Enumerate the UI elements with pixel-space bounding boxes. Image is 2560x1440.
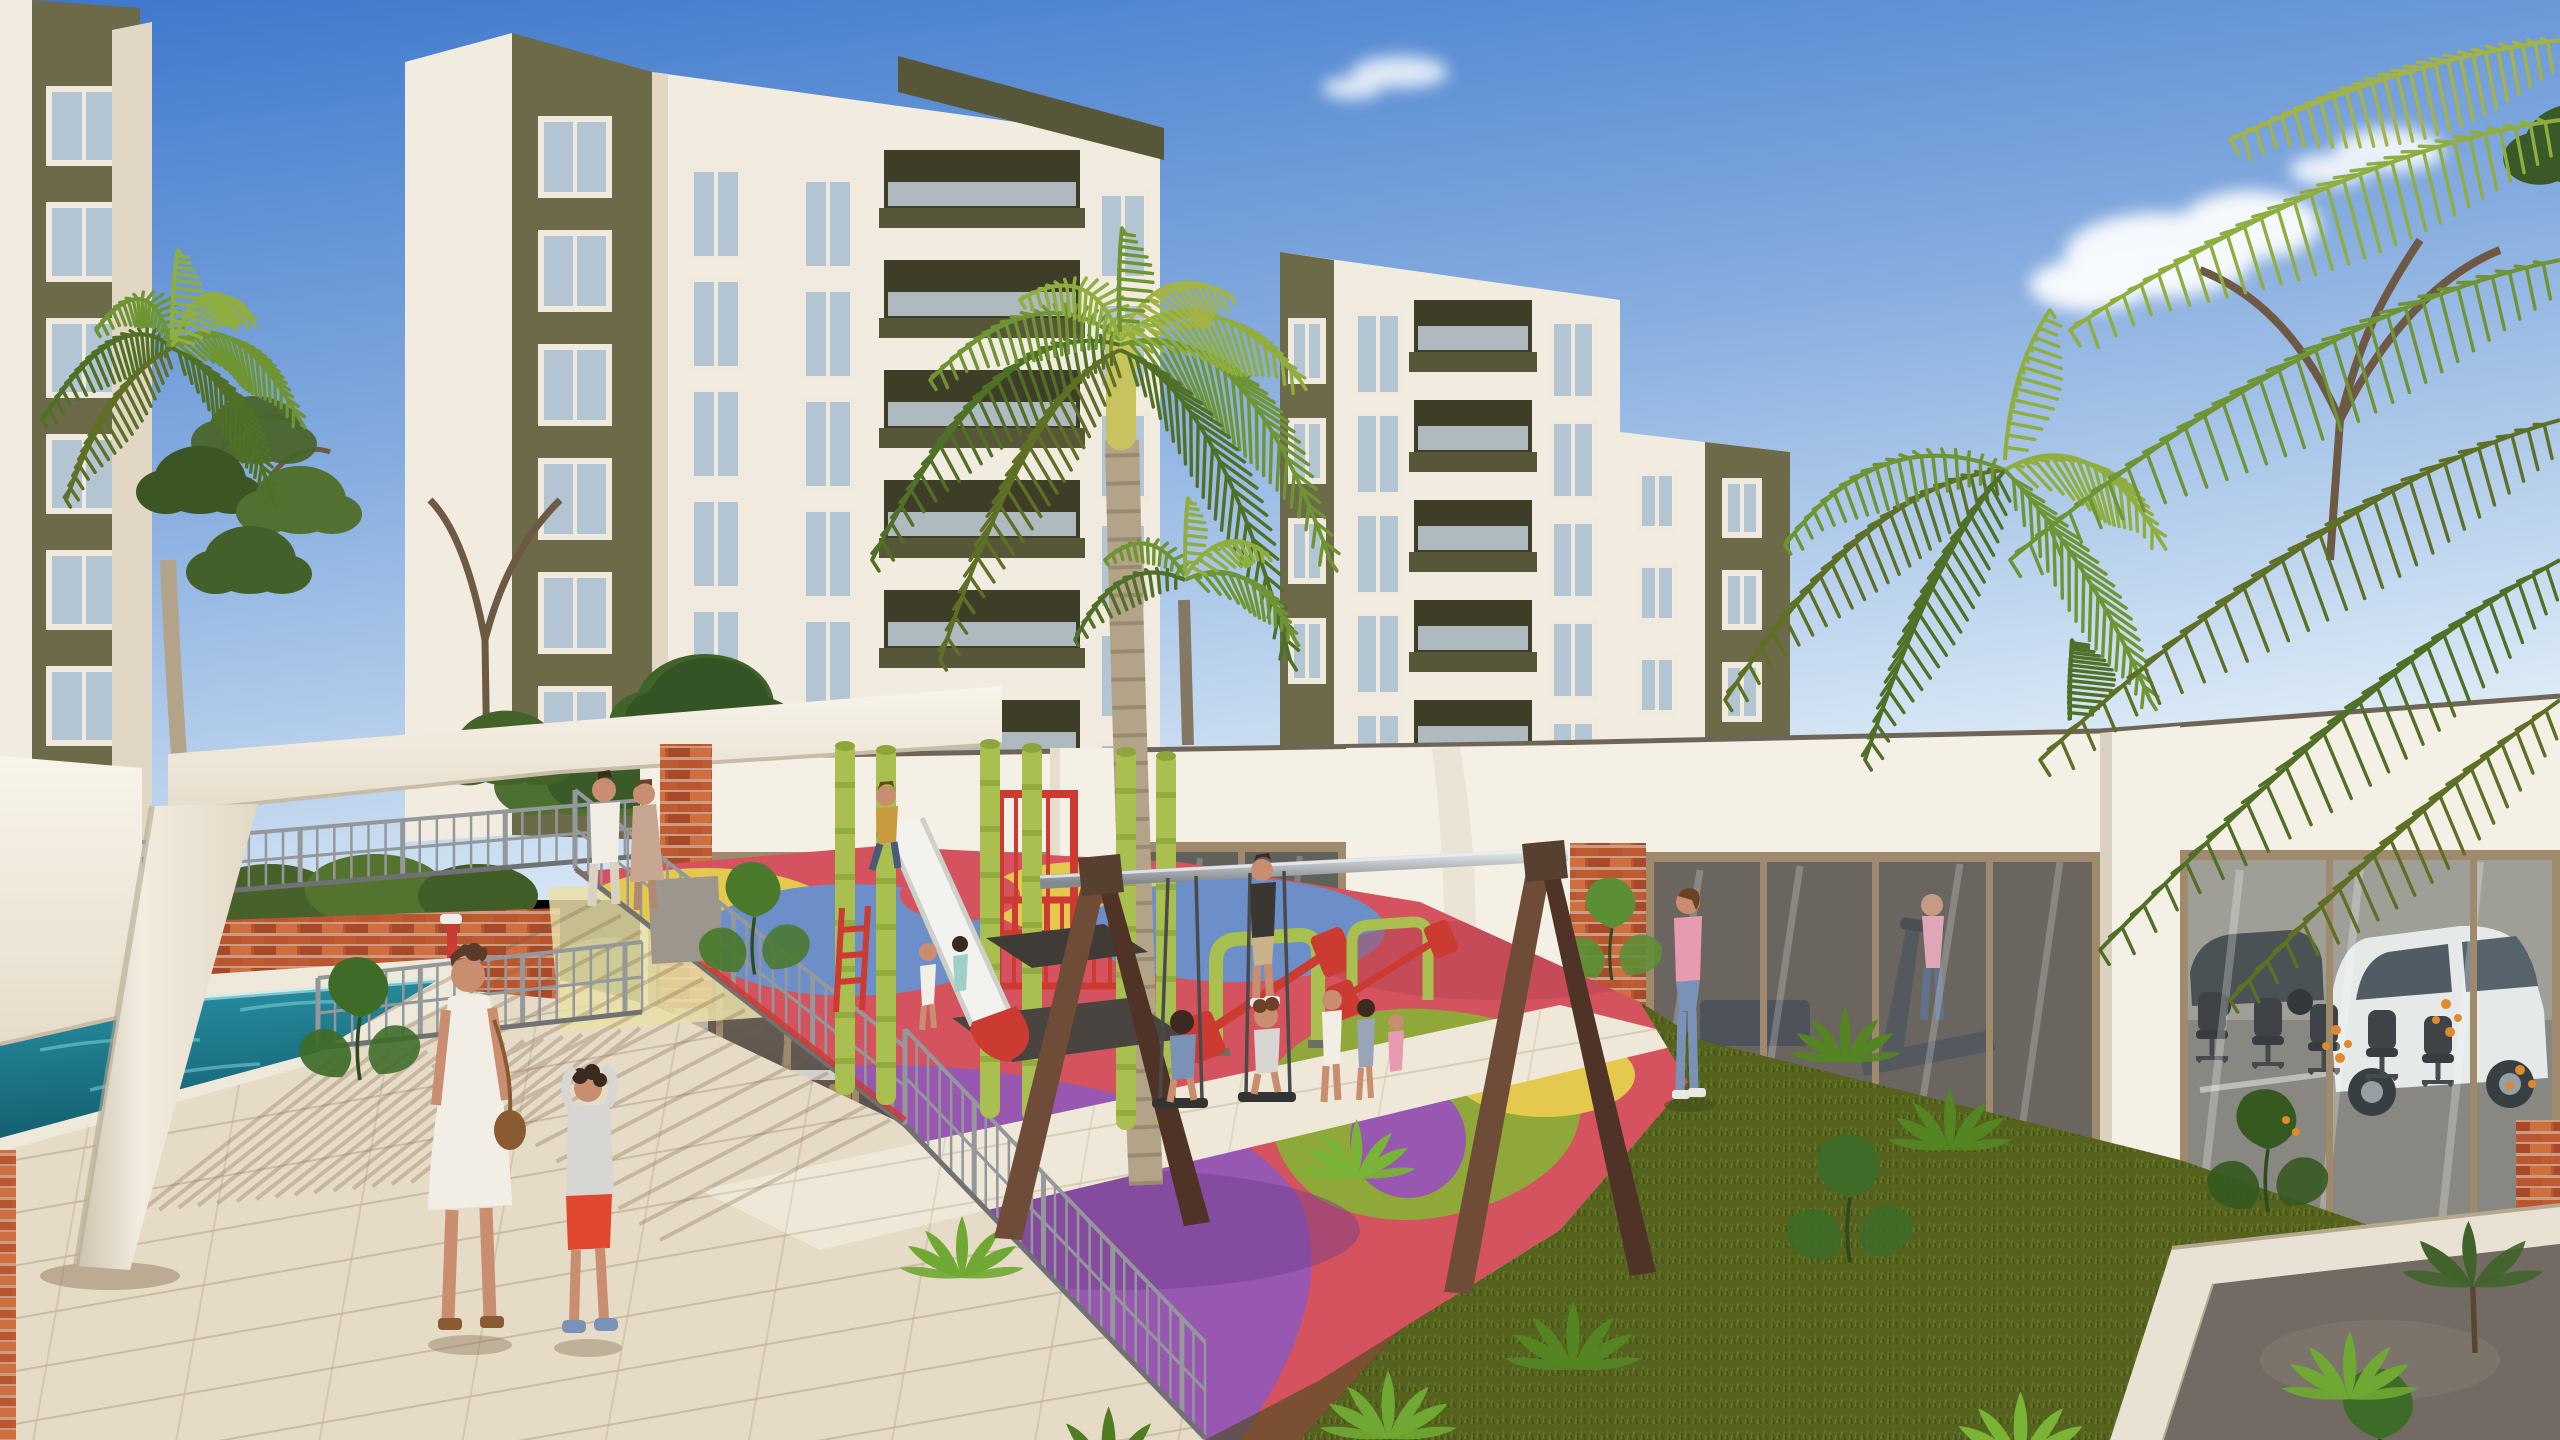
frond-barb [1968,452,1969,459]
frond-barb [1187,508,1198,510]
frond-barb [226,395,227,440]
frond-barb [1146,570,1150,573]
frond-barb [1032,291,1037,292]
frond-barb [2317,96,2333,98]
frond-barb [2515,266,2526,267]
frond-barb [2083,573,2084,632]
frond-barb [1165,554,1167,567]
window-mullion [1376,614,1380,694]
pole-ring [1116,788,1136,794]
pole-cap [1116,747,1136,757]
frond-barb [1264,419,1265,476]
window-mullion [1305,322,1309,380]
swing-seat [1238,1092,1296,1102]
balcony-fascia [1409,652,1537,672]
frond-barb [1887,459,1899,460]
balcony-glass [1418,326,1528,350]
balcony-fascia [1409,552,1537,572]
balcony-glass [1418,426,1528,450]
frond-barb [2436,141,2454,142]
frond-barb [1291,370,1293,393]
frond-barb [1074,287,1075,319]
frond-barb [2497,435,2512,437]
frond-barb [1167,570,1168,574]
frond-barb [1138,540,1140,543]
pole-ring [1022,830,1042,836]
frond-barb [1089,320,1090,348]
frond-barb [145,301,146,326]
frond-barb [275,381,276,405]
window-mullion [1655,566,1659,620]
frond-barb [1021,313,1032,315]
frond-barb [2295,106,2308,108]
frond-barb [1968,459,1969,486]
window-mullion [1571,622,1575,698]
frond-barb [1124,576,1133,577]
frond-barb [1084,291,1086,321]
swing-seat [1152,1098,1208,1108]
window-mullion [573,462,577,536]
frond-barb [1111,334,1113,350]
frond-barb [2046,518,2048,571]
frond-barb [1120,309,1144,311]
frond-barb [126,298,133,299]
frond-barb [1183,402,1185,464]
pole-ring [835,1058,855,1064]
frond-barb [142,292,143,299]
window-mullion [1571,422,1575,498]
tower-c2-balconies [1409,300,1537,772]
tower-c2-windows-b [1548,318,1598,802]
frond-barb [2391,70,2410,71]
frond-barb [2417,62,2435,64]
architectural-rendering [0,0,2560,1440]
frond-barb [2419,294,2441,296]
pole-ring [1116,1110,1136,1116]
frond-barb [1023,295,1029,297]
pole-ring [1022,968,1042,974]
window-mullion [714,500,718,588]
window-mullion [573,234,577,308]
balcony-fascia [879,208,1085,228]
pole-ring [835,874,855,880]
frond-barb [1100,335,1101,341]
frond-barb [1105,560,1108,564]
pole-ring [980,918,1000,924]
pole-ring [876,924,896,930]
pole-ring [876,970,896,976]
frond-barb [2260,122,2269,124]
pole-cap [1022,743,1042,753]
frond-barb [2534,262,2543,264]
frond-barb [2116,633,2118,670]
frond-barb [1185,535,1206,537]
frond-barb [221,388,223,433]
window-mullion [82,206,86,278]
frond-barb [1157,569,1158,573]
window-mullion [1571,322,1575,398]
window-mullion [82,670,86,742]
frond-barb [1109,554,1113,556]
frond-barb [1103,329,1105,349]
balcony-glass [888,622,1076,646]
window-mullion [573,348,577,422]
frond-barb [1956,457,1958,488]
frond-barb [2096,596,2098,649]
window-mullion [826,400,830,488]
apartment-tower-right [1280,252,1620,810]
pole-ring [1156,792,1176,798]
frond-barb [1134,573,1141,574]
frond-barb [1270,431,1272,483]
window-mullion [714,280,718,368]
frond-barb [2306,101,2321,103]
window-mullion [1740,482,1744,534]
frond-barb [1065,279,1067,285]
frond-barb [2142,686,2144,707]
window-mullion [573,120,577,194]
pole-ring [835,920,855,926]
window-mullion [826,180,830,268]
frond-barb [2123,646,2125,677]
frond-barb [1185,562,1197,563]
frond-barb [1167,574,1168,590]
frond-barb [1121,240,1137,242]
frond-barb [1874,464,1887,465]
pole-ring [835,1012,855,1018]
frond-barb [1159,549,1160,565]
tower-c3-windows [1636,470,1678,716]
window-mullion [82,554,86,626]
frond-barb [2329,92,2346,93]
frond-barb [2438,288,2458,289]
frond-barb [1277,444,1279,490]
frond-barb [241,308,243,324]
frond-barb [2061,539,2062,598]
window-mullion [826,510,830,598]
frond-barb [1074,315,1075,351]
pole-cap [1156,751,1176,761]
pole-ring [980,872,1000,878]
tower-c3-windows2 [1722,478,1762,722]
frond-barb [1268,598,1270,623]
window-mullion [714,170,718,258]
frond-barb [2496,271,2509,272]
frond-barb [1256,407,1257,468]
window-mullion [1376,314,1380,394]
frond-barb [1185,552,1201,554]
pole-ring [876,1062,896,1068]
frond-barb [2136,505,2137,532]
pole-ring [1022,922,1042,928]
pole-cap [835,741,855,751]
window-mullion [1376,514,1380,594]
apartment-tower-far-left [0,0,152,845]
frond-barb [2368,162,2392,164]
frond-barb [1079,289,1080,321]
frond-barb [2516,430,2528,431]
window-mullion [714,390,718,478]
frond-barb [2283,111,2295,113]
balcony-fascia [1409,452,1537,472]
pole-ring [1116,834,1136,840]
frond-barb [1186,514,1202,516]
frond-barb [2341,87,2359,88]
frond-barb [1096,324,1098,348]
frond-barb [1001,320,1015,322]
frond-barb [235,410,236,451]
frond-barb [1122,546,1127,547]
pole-ring [1022,876,1042,882]
frond-barb [263,365,265,398]
frond-barb [1197,423,1198,486]
frond-barb [1956,450,1957,457]
frond-barb [1186,520,1205,522]
frond-barb [172,321,193,323]
frond-barb [1980,455,1982,462]
window-mullion [1740,574,1744,626]
frond-barb [122,334,131,336]
window-mullion [826,620,830,708]
pole-ring [876,878,896,884]
frond-barb [1116,549,1120,550]
frond-barb [2471,132,2486,134]
window-mullion [1655,474,1659,528]
window-mullion [1376,414,1380,494]
frond-barb [1191,412,1192,475]
frond-barb [2404,66,2423,67]
frond-barb [2103,608,2105,656]
balcony-glass [1418,526,1528,550]
frond-barb [1188,498,1191,502]
frond-barb [2454,136,2470,138]
frond-barb [1203,435,1205,497]
frond-barb [1148,544,1149,563]
frond-barb [246,313,247,329]
frond-barb [1141,543,1143,562]
frond-barb [1074,278,1076,287]
pole-ring [980,780,1000,786]
pole-cap [980,739,1000,749]
frond-barb [269,373,270,402]
window-mullion [82,90,86,162]
frond-barb [1120,320,1139,321]
window-mullion [573,576,577,650]
window-mullion [1305,622,1309,680]
frond-barb [1275,606,1276,626]
pole-cap [876,745,896,755]
frond-barb [1121,234,1134,236]
frond-barb [1158,573,1160,593]
pole-ring [835,828,855,834]
window-mullion [1571,522,1575,598]
brick-edge-left [0,1150,16,1440]
window-mullion [826,290,830,378]
frond-barb [2234,134,2243,136]
balcony-fascia [879,648,1085,668]
frond-barb [2247,128,2256,130]
frond-barb [147,335,148,362]
frond-barb [1268,556,1271,560]
frond-barb [2431,59,2448,61]
frond-barb [293,409,294,427]
pole-ring [1156,838,1176,844]
frond-barb [172,330,188,332]
balcony-glass [1418,626,1528,650]
pole-ring [980,826,1000,832]
frond-barb [239,418,241,457]
frond-barb [2272,117,2282,119]
frond-barb [1148,539,1149,544]
balcony-glass [888,512,1076,536]
frond-barb [2089,584,2091,640]
window-mullion [1655,658,1659,712]
frond-barb [1288,627,1289,640]
pole-ring [835,782,855,788]
pole-ring [1116,1064,1136,1070]
pole-ring [876,1016,896,1022]
tower-c2-windows-a [1352,310,1404,798]
frond-barb [2353,83,2372,84]
balcony-fascia [1409,352,1537,372]
frond-barb [2109,621,2111,664]
frond-barb [1130,543,1134,544]
frond-barb [2385,157,2408,158]
play-pole [835,742,855,1095]
frond-barb [1185,544,1204,546]
pole-ring [1022,784,1042,790]
frond-barb [1261,550,1263,561]
balcony-glass [888,182,1076,206]
frond-barb [1047,285,1053,287]
